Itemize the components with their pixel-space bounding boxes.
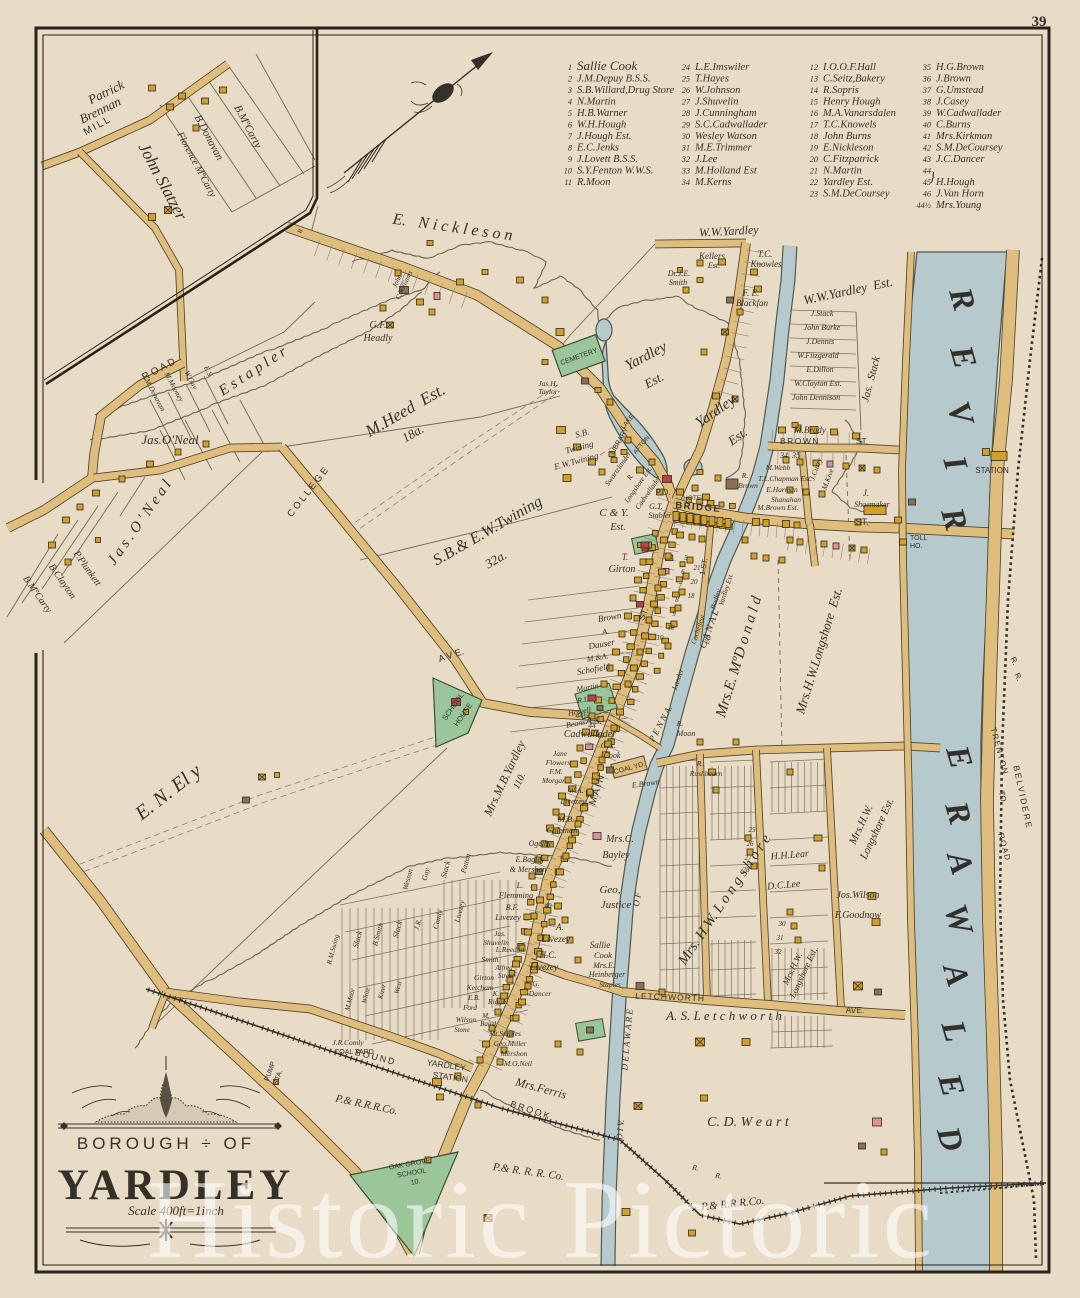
svg-text:J.Lee: J.Lee bbox=[695, 154, 718, 165]
svg-text:Stone: Stone bbox=[454, 1026, 470, 1034]
svg-text:17: 17 bbox=[810, 121, 819, 130]
svg-text:Flowers: Flowers bbox=[545, 758, 571, 767]
svg-text:46: 46 bbox=[923, 190, 932, 199]
svg-text:9: 9 bbox=[672, 610, 676, 618]
svg-text:R.Sopris: R.Sopris bbox=[822, 85, 859, 96]
svg-text:S.C.Cadwallader: S.C.Cadwallader bbox=[695, 120, 768, 131]
svg-text:5: 5 bbox=[568, 109, 572, 118]
svg-text:14: 14 bbox=[810, 86, 818, 95]
svg-text:S.B.Willard,Drug Store: S.B.Willard,Drug Store bbox=[577, 85, 675, 96]
svg-text:J.Casey: J.Casey bbox=[936, 97, 969, 108]
svg-text:Smith: Smith bbox=[669, 278, 687, 287]
svg-text:Mt.Staples: Mt.Staples bbox=[488, 1029, 521, 1038]
svg-text:28: 28 bbox=[743, 866, 751, 874]
svg-text:I.O.O.F.Hall: I.O.O.F.Hall bbox=[822, 62, 876, 73]
svg-text:R.Moon: R.Moon bbox=[576, 177, 611, 188]
svg-text:Jas.O'Neal: Jas.O'Neal bbox=[141, 432, 199, 447]
svg-text:Livezey: Livezey bbox=[541, 935, 571, 945]
svg-text:31: 31 bbox=[681, 144, 690, 153]
svg-text:Blackfan: Blackfan bbox=[736, 298, 768, 308]
svg-text:27: 27 bbox=[682, 98, 691, 107]
svg-text:26: 26 bbox=[682, 86, 691, 95]
svg-text:G.A.: G.A. bbox=[601, 741, 616, 750]
svg-text:12: 12 bbox=[810, 63, 818, 72]
svg-text:11: 11 bbox=[564, 178, 572, 187]
svg-text:41: 41 bbox=[923, 132, 931, 141]
svg-text:Ketcham: Ketcham bbox=[466, 983, 494, 992]
svg-text:C.Burns: C.Burns bbox=[936, 120, 971, 131]
svg-text:Headly: Headly bbox=[363, 333, 393, 344]
svg-text:N.Martin: N.Martin bbox=[822, 166, 862, 177]
svg-text:& Mershon: & Mershon bbox=[510, 865, 547, 874]
svg-text:25: 25 bbox=[749, 826, 757, 834]
svg-text:19: 19 bbox=[668, 624, 676, 632]
svg-text:R.: R. bbox=[741, 471, 749, 480]
svg-text:20: 20 bbox=[810, 155, 819, 164]
svg-text:21: 21 bbox=[810, 167, 818, 176]
svg-text:Jas.: Jas. bbox=[494, 929, 506, 938]
svg-text:J.C.Dancer: J.C.Dancer bbox=[936, 154, 985, 165]
svg-text:W.A.: W.A. bbox=[568, 785, 584, 795]
svg-text:C.Fitzpatrick: C.Fitzpatrick bbox=[823, 154, 879, 165]
svg-text:G.: G. bbox=[532, 979, 539, 988]
svg-text:Staples: Staples bbox=[599, 980, 621, 989]
svg-text:John Burns: John Burns bbox=[823, 131, 871, 142]
svg-text:AVE.: AVE. bbox=[846, 1005, 865, 1015]
svg-text:15: 15 bbox=[810, 98, 818, 107]
svg-text:Stabler: Stabler bbox=[648, 511, 672, 520]
svg-text:2: 2 bbox=[568, 75, 572, 84]
svg-text:23: 23 bbox=[810, 190, 818, 199]
svg-text:39: 39 bbox=[922, 109, 932, 118]
svg-text:M.Kerns: M.Kerns bbox=[694, 177, 731, 188]
svg-text:COAL YARD: COAL YARD bbox=[334, 1049, 374, 1056]
svg-text:Livezey: Livezey bbox=[494, 912, 521, 922]
svg-text:45: 45 bbox=[596, 731, 604, 740]
svg-text:Kellers: Kellers bbox=[698, 251, 725, 261]
svg-text:BROWN: BROWN bbox=[780, 436, 820, 446]
svg-text:Wesley Watson: Wesley Watson bbox=[695, 131, 757, 142]
svg-text:L.E.Imswiler: L.E.Imswiler bbox=[694, 62, 750, 73]
svg-text:HO.: HO. bbox=[910, 543, 923, 550]
svg-text:43: 43 bbox=[923, 155, 931, 164]
svg-text:W.Fitzgerald: W.Fitzgerald bbox=[797, 351, 839, 360]
svg-text:J.Dennis: J.Dennis bbox=[806, 337, 834, 346]
svg-text:Girton: Girton bbox=[474, 973, 494, 982]
svg-text:Girton: Girton bbox=[609, 564, 636, 575]
svg-text:44½: 44½ bbox=[916, 201, 931, 210]
svg-text:Jane: Jane bbox=[553, 749, 568, 758]
svg-text:T.Hayes: T.Hayes bbox=[695, 74, 729, 85]
svg-text:Geo,: Geo, bbox=[599, 884, 620, 896]
svg-text:44½: 44½ bbox=[575, 711, 589, 720]
svg-text:Taylor: Taylor bbox=[538, 387, 557, 396]
svg-text:Dr.J.E.: Dr.J.E. bbox=[667, 269, 690, 278]
svg-text:Henry Hough: Henry Hough bbox=[822, 97, 880, 108]
svg-text:Street: Street bbox=[498, 972, 515, 980]
svg-text:ST.: ST. bbox=[855, 517, 868, 527]
svg-text:W.H.Hough: W.H.Hough bbox=[577, 120, 626, 131]
svg-text:Sallie Cook: Sallie Cook bbox=[577, 58, 638, 73]
svg-text:33: 33 bbox=[681, 167, 690, 176]
svg-text:Rushbearn: Rushbearn bbox=[689, 769, 723, 778]
svg-text:31: 31 bbox=[776, 934, 784, 942]
svg-text:Baird: Baird bbox=[480, 1020, 496, 1028]
svg-text:Est.: Est. bbox=[609, 522, 625, 533]
svg-text:38: 38 bbox=[922, 98, 932, 107]
svg-text:Est.: Est. bbox=[707, 261, 720, 270]
svg-text:30: 30 bbox=[778, 920, 787, 928]
svg-text:Mrs.Kirkman: Mrs.Kirkman bbox=[935, 131, 992, 142]
svg-text:E.B.: E.B. bbox=[467, 994, 480, 1002]
svg-text:W.Johnson: W.Johnson bbox=[695, 85, 740, 96]
svg-text:16: 16 bbox=[810, 109, 819, 118]
svg-text:Knowles: Knowles bbox=[749, 259, 782, 269]
svg-text:26: 26 bbox=[747, 840, 755, 848]
svg-text:25: 25 bbox=[682, 75, 690, 84]
svg-text:29: 29 bbox=[682, 121, 691, 130]
svg-text:Justice: Justice bbox=[601, 899, 632, 911]
svg-text:5: 5 bbox=[684, 554, 688, 562]
svg-text:3: 3 bbox=[567, 86, 572, 95]
svg-text:44: 44 bbox=[588, 721, 596, 730]
svg-text:F.M.: F.M. bbox=[548, 767, 563, 776]
svg-text:T.: T. bbox=[622, 552, 629, 562]
svg-text:J.Brown: J.Brown bbox=[936, 74, 971, 85]
svg-text:1: 1 bbox=[568, 63, 572, 72]
svg-text:Alfred: Alfred bbox=[494, 964, 513, 972]
svg-text:7: 7 bbox=[678, 582, 682, 590]
svg-text:J.Van Horn: J.Van Horn bbox=[936, 189, 984, 200]
svg-text:Mershon: Mershon bbox=[500, 1049, 528, 1058]
svg-text:40: 40 bbox=[923, 121, 932, 130]
svg-text:Shoemaker: Shoemaker bbox=[854, 500, 890, 509]
svg-text:M.Holland Est: M.Holland Est bbox=[694, 166, 758, 177]
svg-text:Coleman: Coleman bbox=[547, 825, 578, 835]
svg-text:C & Y.: C & Y. bbox=[599, 507, 628, 519]
svg-text:J.Hough Est.: J.Hough Est. bbox=[577, 131, 632, 142]
svg-text:P.O.: P.O. bbox=[656, 488, 671, 497]
svg-text:Historic Pictoric: Historic Pictoric bbox=[147, 1158, 935, 1282]
svg-text:Riggin: Riggin bbox=[487, 997, 508, 1006]
svg-text:J.Stack: J.Stack bbox=[811, 309, 834, 318]
svg-text:D I V.: D I V. bbox=[614, 1119, 626, 1142]
svg-text:Mrs.C.: Mrs.C. bbox=[605, 834, 634, 845]
svg-text:J.Shuvelin: J.Shuvelin bbox=[695, 97, 738, 108]
svg-text:}: } bbox=[929, 170, 935, 185]
svg-text:M.: M. bbox=[481, 1012, 490, 1020]
svg-text:10: 10 bbox=[564, 167, 573, 176]
svg-text:W.Clayton Est.: W.Clayton Est. bbox=[794, 379, 841, 388]
svg-text:TOLL: TOLL bbox=[910, 535, 927, 542]
svg-text:HOTEL: HOTEL bbox=[683, 495, 705, 502]
svg-text:28: 28 bbox=[682, 109, 691, 118]
svg-text:R.: R. bbox=[696, 759, 704, 768]
svg-text:S.M.DeCoursey: S.M.DeCoursey bbox=[936, 143, 1003, 154]
svg-text:19: 19 bbox=[810, 144, 819, 153]
svg-text:Wilson: Wilson bbox=[456, 1015, 477, 1024]
svg-text:H.C.: H.C. bbox=[538, 950, 556, 960]
svg-text:Jos.Wilson: Jos.Wilson bbox=[836, 890, 879, 901]
svg-text:A. S. L e t c h w o r t h: A. S. L e t c h w o r t h bbox=[665, 1008, 782, 1023]
svg-text:27: 27 bbox=[745, 854, 753, 862]
svg-text:24: 24 bbox=[682, 63, 690, 72]
svg-text:Yardley Est.: Yardley Est. bbox=[823, 177, 873, 188]
svg-text:E.Harman: E.Harman bbox=[765, 485, 798, 494]
svg-text:F. E.: F. E. bbox=[742, 288, 760, 298]
svg-text:34 35: 34 35 bbox=[779, 451, 800, 460]
svg-text:John Dennison: John Dennison bbox=[792, 393, 840, 402]
svg-text:4: 4 bbox=[568, 98, 572, 107]
svg-text:J.: J. bbox=[863, 488, 869, 498]
svg-text:T.C.: T.C. bbox=[758, 249, 773, 259]
svg-text:Heinberger: Heinberger bbox=[588, 970, 626, 979]
svg-text:Morgan: Morgan bbox=[541, 776, 566, 785]
svg-text:M.Brady: M.Brady bbox=[793, 425, 826, 435]
svg-text:L.Reedon: L.Reedon bbox=[495, 945, 525, 954]
svg-text:Brown: Brown bbox=[738, 481, 758, 490]
svg-text:R.: R. bbox=[676, 719, 684, 728]
svg-text:M.E.Trimmer: M.E.Trimmer bbox=[694, 143, 753, 154]
svg-text:Mrs.E.: Mrs.E. bbox=[592, 961, 615, 970]
svg-text:40: 40 bbox=[545, 902, 553, 910]
svg-text:BOROUGH ÷ OF: BOROUGH ÷ OF bbox=[77, 1134, 255, 1153]
svg-text:ST.: ST. bbox=[856, 436, 868, 446]
svg-text:T.L.Chapman Est.: T.L.Chapman Est. bbox=[758, 474, 812, 483]
svg-text:18: 18 bbox=[810, 132, 819, 141]
svg-text:T.C.Knowels: T.C.Knowels bbox=[823, 120, 876, 131]
svg-text:E.C.Jenks: E.C.Jenks bbox=[576, 143, 619, 154]
svg-text:M.Brown Est.: M.Brown Est. bbox=[756, 503, 798, 512]
svg-text:Livezey: Livezey bbox=[529, 963, 559, 973]
svg-text:Bayley: Bayley bbox=[602, 850, 630, 861]
svg-text:Moon: Moon bbox=[676, 729, 696, 738]
svg-text:6: 6 bbox=[681, 568, 685, 576]
svg-text:F.Goodnow: F.Goodnow bbox=[834, 910, 882, 921]
svg-text:34: 34 bbox=[681, 178, 690, 187]
svg-text:A.: A. bbox=[555, 922, 564, 932]
svg-text:8: 8 bbox=[675, 596, 679, 604]
svg-text:STATION: STATION bbox=[975, 466, 1009, 475]
svg-text:G.Umstead: G.Umstead bbox=[936, 85, 984, 96]
svg-text:35: 35 bbox=[922, 63, 931, 72]
svg-text:42: 42 bbox=[923, 144, 931, 153]
svg-text:M.O.Neil: M.O.Neil bbox=[503, 1059, 532, 1068]
svg-text:Mrs.Young: Mrs.Young bbox=[935, 200, 981, 211]
svg-text:E.Bagley: E.Bagley bbox=[514, 855, 545, 864]
svg-text:B.F.: B.F. bbox=[506, 903, 519, 912]
svg-text:Smith: Smith bbox=[481, 955, 498, 964]
svg-text:E.Dillon: E.Dillon bbox=[805, 365, 833, 374]
svg-text:S.Y.Fenton W.W.S.: S.Y.Fenton W.W.S. bbox=[577, 166, 653, 177]
svg-text:H.B.Warner: H.B.Warner bbox=[576, 108, 628, 119]
svg-text:10: 10 bbox=[657, 634, 665, 642]
svg-text:Geo.Miller: Geo.Miller bbox=[493, 1039, 526, 1048]
svg-text:37: 37 bbox=[922, 86, 932, 95]
svg-text:30: 30 bbox=[681, 132, 691, 141]
svg-text:36: 36 bbox=[922, 75, 932, 84]
svg-text:J.Cunningham: J.Cunningham bbox=[695, 108, 757, 119]
svg-text:J.Lovett B.S.S.: J.Lovett B.S.S. bbox=[577, 154, 638, 165]
svg-text:Dancer: Dancer bbox=[528, 989, 552, 998]
svg-text:S.M.DeCoursey: S.M.DeCoursey bbox=[823, 189, 890, 200]
svg-text:N.Martin: N.Martin bbox=[576, 97, 616, 108]
svg-text:18: 18 bbox=[688, 592, 696, 600]
svg-text:20: 20 bbox=[691, 578, 699, 586]
svg-text:Cadwallader: Cadwallader bbox=[564, 729, 616, 740]
svg-text:W.Cadwallader: W.Cadwallader bbox=[936, 108, 1002, 119]
svg-text:22: 22 bbox=[810, 178, 818, 187]
svg-text:H.Hough: H.Hough bbox=[935, 177, 975, 188]
svg-text:Cook: Cook bbox=[604, 751, 621, 760]
svg-text:J.R.Comly: J.R.Comly bbox=[332, 1038, 364, 1047]
svg-text:C.Seitz,Bakery: C.Seitz,Bakery bbox=[823, 74, 885, 85]
svg-text:E.Nickleson: E.Nickleson bbox=[822, 143, 873, 154]
svg-text:C. D. W e a r t: C. D. W e a r t bbox=[707, 1115, 790, 1130]
svg-text:J.M.Depuy B.S.S.: J.M.Depuy B.S.S. bbox=[577, 74, 650, 85]
svg-text:M.Webb: M.Webb bbox=[765, 463, 791, 472]
svg-text:32: 32 bbox=[681, 155, 690, 164]
svg-text:Ogelby: Ogelby bbox=[528, 839, 552, 848]
svg-text:G.T.: G.T. bbox=[649, 502, 663, 511]
svg-text:Sallie: Sallie bbox=[590, 940, 611, 950]
svg-text:13: 13 bbox=[810, 75, 818, 84]
svg-text:A.: A. bbox=[600, 627, 609, 637]
svg-text:G.F.: G.F. bbox=[369, 320, 386, 331]
svg-text:L.: L. bbox=[516, 881, 523, 890]
svg-text:Flemming: Flemming bbox=[498, 890, 533, 900]
svg-text:M.B.: M.B. bbox=[557, 814, 575, 824]
svg-text:M.A.Vanarsdalen: M.A.Vanarsdalen bbox=[822, 108, 896, 119]
svg-text:John Burke: John Burke bbox=[804, 323, 841, 332]
svg-text:Livezey: Livezey bbox=[559, 796, 586, 806]
svg-text:Ford: Ford bbox=[462, 1004, 477, 1012]
svg-text:Cook: Cook bbox=[594, 950, 612, 960]
svg-text:H.G.Brown: H.G.Brown bbox=[935, 62, 984, 73]
svg-text:32: 32 bbox=[774, 948, 783, 956]
